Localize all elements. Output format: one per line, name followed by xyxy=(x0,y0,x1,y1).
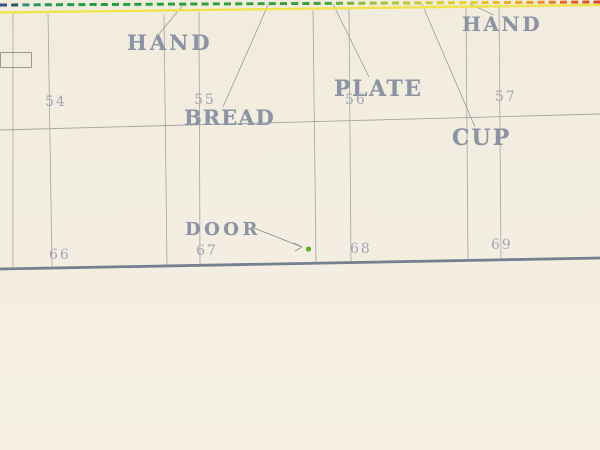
grid-number-67: 67 xyxy=(196,244,218,258)
connector-line xyxy=(223,5,268,107)
grid-vertical-line xyxy=(313,10,316,263)
grid-number-57: 57 xyxy=(495,90,517,104)
artwork-geometry-layer xyxy=(0,0,600,450)
stencil-word-hand-left: HAND xyxy=(127,32,213,53)
artwork-canvas: HAND BREAD PLATE HAND CUP DOOR 54 55 56 … xyxy=(0,0,600,450)
grid-vertical-line xyxy=(349,8,351,262)
green-dot xyxy=(306,246,311,251)
door-arrow-line xyxy=(254,228,302,247)
grid-number-68: 68 xyxy=(350,242,372,256)
stencil-word-cup: CUP xyxy=(452,127,511,149)
grid-number-55: 55 xyxy=(194,93,216,107)
stencil-word-hand-right: HAND xyxy=(462,14,542,34)
grid-vertical-line xyxy=(48,14,52,266)
stencil-word-door: DOOR xyxy=(185,221,261,239)
grid-number-56: 56 xyxy=(345,93,367,107)
stencil-word-bread: BREAD xyxy=(184,107,275,128)
left-rectangle xyxy=(1,53,32,68)
grid-number-69: 69 xyxy=(491,238,513,252)
baseline xyxy=(0,258,600,269)
connector-line xyxy=(333,4,369,77)
grid-number-54: 54 xyxy=(45,95,67,109)
grid-number-66: 66 xyxy=(49,248,71,262)
